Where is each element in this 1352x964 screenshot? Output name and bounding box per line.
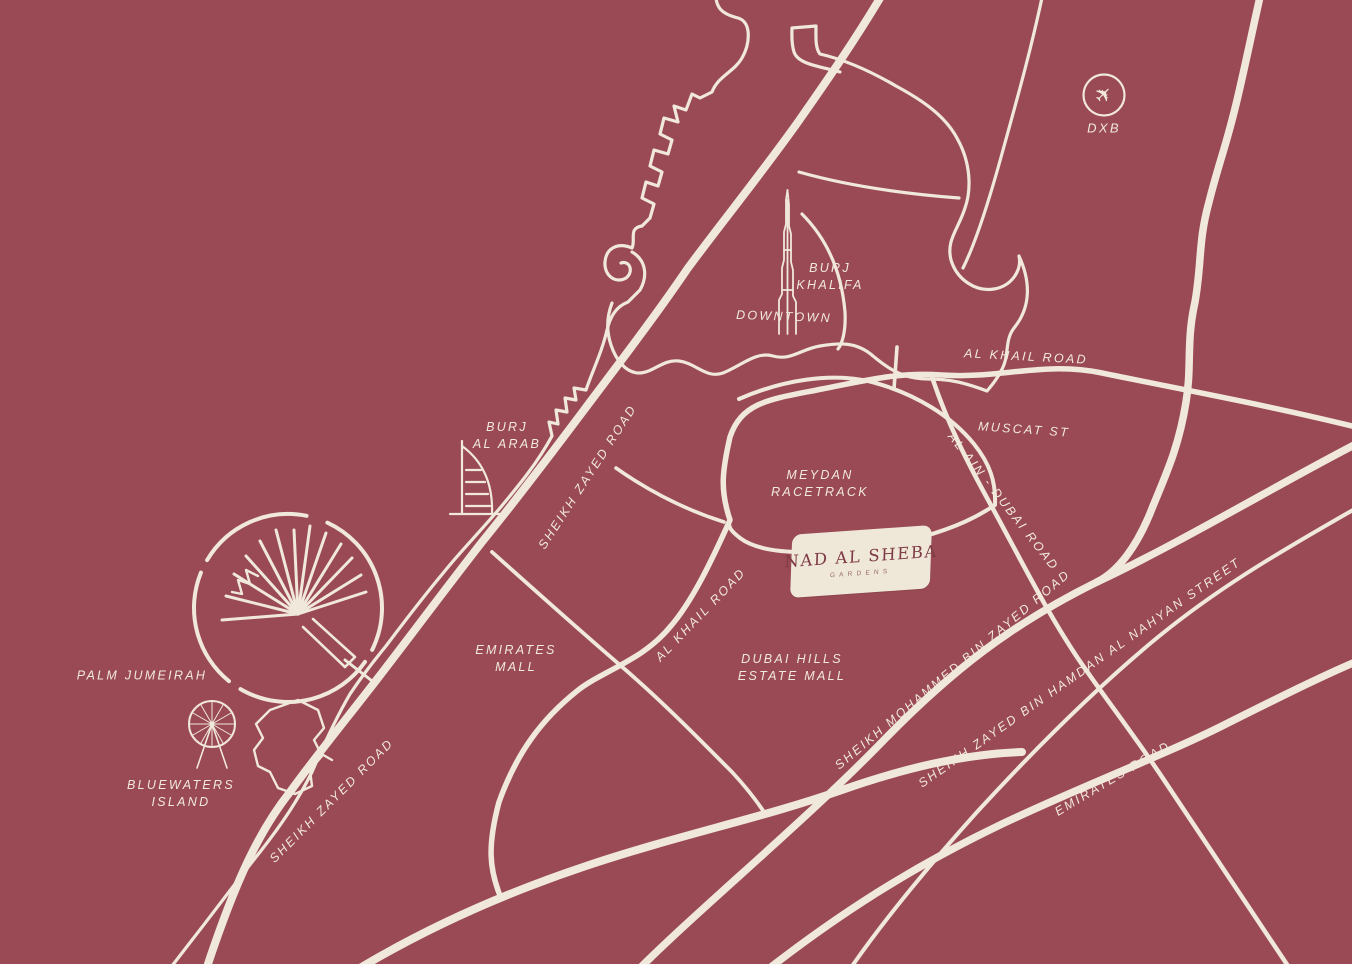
label-burj-al-arab-line2: AL ARAB (473, 436, 541, 453)
road-creek-connector (894, 347, 897, 389)
badge-title: NAD AL SHEBA (784, 541, 938, 571)
label-dxb: DXB (1087, 120, 1121, 137)
label-burj-al-arab-line1: BURJ (473, 419, 541, 436)
label-emirates-mall-line1: EMIRATES (475, 642, 556, 659)
label-burj-al-arab: BURJ AL ARAB (473, 419, 541, 453)
label-bluewaters-island: BLUEWATERS ISLAND (127, 777, 235, 811)
label-burj-khalifa-line2: KHALIFA (796, 277, 863, 294)
label-dubai-hills-estate-mall: DUBAI HILLS ESTATE MALL (738, 651, 846, 685)
label-burj-khalifa: BURJ KHALIFA (796, 260, 863, 294)
label-meydan-line2: RACETRACK (771, 484, 869, 501)
map-linework (0, 0, 1352, 964)
road-al-khail (491, 369, 1352, 893)
label-meydan-line1: MEYDAN (771, 467, 869, 484)
coastline (164, 0, 748, 964)
label-dubai-hills-line2: ESTATE MALL (738, 668, 846, 685)
label-downtown: DOWNTOWN (736, 307, 832, 327)
label-palm-jumeirah: PALM JUMEIRAH (77, 668, 207, 685)
palm-jumeirah-icon (163, 483, 413, 733)
label-bluewaters-line2: ISLAND (127, 794, 235, 811)
creek-loop (608, 26, 1028, 391)
creek-airport-branch (963, 0, 1044, 268)
road-downtown-inner-1 (799, 172, 959, 198)
label-dubai-hills-line1: DUBAI HILLS (738, 651, 846, 668)
dubai-location-map: ✈ DXB BURJ KHALIFA DOWNTOWN AL KHAIL ROA… (0, 0, 1352, 964)
ferris-wheel-icon (189, 701, 235, 768)
label-bluewaters-line1: BLUEWATERS (127, 777, 235, 794)
label-emirates-mall: EMIRATES MALL (475, 642, 556, 676)
road-e66 (1097, 0, 1262, 582)
nad-al-sheba-gardens-badge[interactable]: NAD AL SHEBA GARDENS (790, 525, 932, 598)
road-branch-upper (616, 468, 724, 522)
badge-subtitle: GARDENS (830, 567, 892, 578)
road-sheikh-mohammed-bin-zayed (636, 442, 1352, 964)
label-burj-khalifa-line1: BURJ (796, 260, 863, 277)
label-meydan-racetrack: MEYDAN RACETRACK (771, 467, 869, 501)
road-meydan-loop (729, 378, 995, 552)
label-emirates-mall-line2: MALL (475, 659, 556, 676)
